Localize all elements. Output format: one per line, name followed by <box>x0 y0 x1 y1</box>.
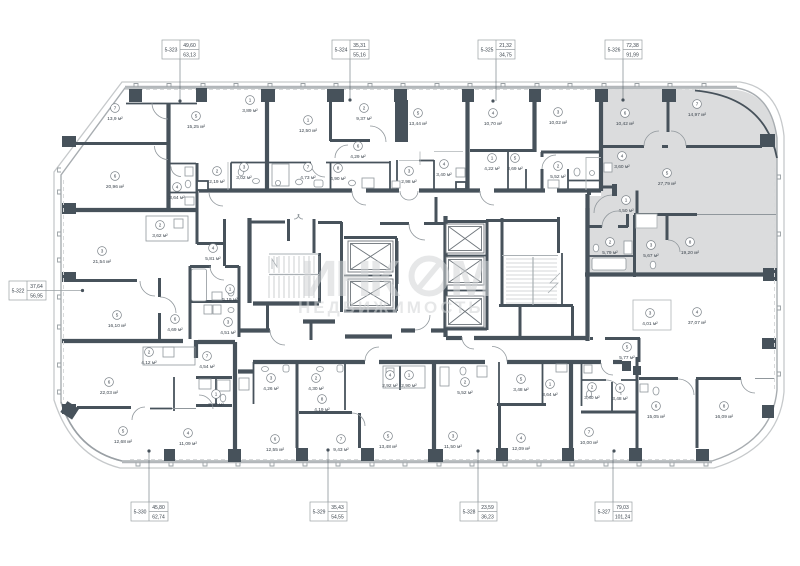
svg-text:12,50 м²: 12,50 м² <box>299 128 318 134</box>
svg-text:5-329: 5-329 <box>313 510 326 516</box>
svg-text:5: 5 <box>417 111 420 116</box>
svg-text:2: 2 <box>464 380 467 385</box>
svg-text:4: 4 <box>176 185 179 190</box>
svg-text:16,09 м²: 16,09 м² <box>715 414 734 420</box>
svg-text:3: 3 <box>270 376 273 381</box>
svg-text:3: 3 <box>557 110 560 115</box>
svg-text:12,55 м²: 12,55 м² <box>266 447 285 453</box>
svg-text:5: 5 <box>520 377 523 382</box>
svg-text:1: 1 <box>249 98 252 103</box>
svg-text:8: 8 <box>337 166 340 171</box>
svg-text:4,19 м²: 4,19 м² <box>314 407 330 413</box>
svg-text:79,03: 79,03 <box>616 505 629 511</box>
svg-text:5-324: 5-324 <box>335 48 348 54</box>
svg-text:35,43: 35,43 <box>331 505 344 511</box>
svg-text:14,97 м²: 14,97 м² <box>688 112 707 118</box>
svg-text:7: 7 <box>206 354 209 359</box>
svg-text:5: 5 <box>387 434 390 439</box>
svg-text:91,99: 91,99 <box>626 53 639 59</box>
svg-text:5,77 м²: 5,77 м² <box>619 355 635 361</box>
svg-text:55,16: 55,16 <box>353 53 366 59</box>
svg-text:5,52 м²: 5,52 м² <box>550 174 566 180</box>
svg-text:7: 7 <box>307 165 310 170</box>
svg-text:1: 1 <box>625 198 628 203</box>
svg-text:2: 2 <box>148 350 151 355</box>
svg-text:5,81 м²: 5,81 м² <box>205 256 221 262</box>
svg-text:3,69 м²: 3,69 м² <box>507 166 523 172</box>
svg-text:2,92 м²: 2,92 м² <box>382 383 398 389</box>
svg-text:11,09 м²: 11,09 м² <box>179 441 197 447</box>
svg-text:3,64 м²: 3,64 м² <box>542 392 558 398</box>
svg-text:6: 6 <box>655 404 658 409</box>
svg-text:2,19 м²: 2,19 м² <box>209 179 225 185</box>
svg-text:72,38: 72,38 <box>626 43 639 49</box>
svg-text:20,96 м²: 20,96 м² <box>106 184 125 190</box>
svg-text:2: 2 <box>609 240 612 245</box>
svg-text:6: 6 <box>274 437 277 442</box>
svg-text:3,62 м²: 3,62 м² <box>152 233 168 239</box>
svg-text:2: 2 <box>159 223 162 228</box>
svg-text:12,68 м²: 12,68 м² <box>114 439 133 445</box>
svg-text:5,67 м²: 5,67 м² <box>643 253 659 259</box>
svg-text:3: 3 <box>452 434 455 439</box>
svg-text:23,59: 23,59 <box>481 505 494 511</box>
svg-text:4: 4 <box>492 111 495 116</box>
svg-text:4: 4 <box>389 373 392 378</box>
svg-text:5: 5 <box>666 171 669 176</box>
svg-text:4,22 м²: 4,22 м² <box>484 166 500 172</box>
svg-text:1: 1 <box>491 156 494 161</box>
svg-text:45,80: 45,80 <box>152 505 165 511</box>
svg-text:5-328: 5-328 <box>463 510 476 516</box>
svg-text:6: 6 <box>114 174 117 179</box>
svg-text:101,24: 101,24 <box>615 515 631 521</box>
svg-text:3: 3 <box>650 243 653 248</box>
svg-text:10,42 м²: 10,42 м² <box>616 121 635 127</box>
svg-text:2,90 м²: 2,90 м² <box>401 383 417 389</box>
svg-text:15,25 м²: 15,25 м² <box>187 124 206 130</box>
svg-text:10,02 м²: 10,02 м² <box>549 120 568 126</box>
svg-text:2: 2 <box>315 376 318 381</box>
svg-text:4: 4 <box>187 431 190 436</box>
svg-text:8: 8 <box>321 397 324 402</box>
svg-text:34,75: 34,75 <box>499 53 512 59</box>
svg-text:3: 3 <box>227 320 230 325</box>
svg-text:10,70 м²: 10,70 м² <box>484 121 503 127</box>
svg-text:1: 1 <box>307 118 310 123</box>
svg-text:7: 7 <box>588 430 591 435</box>
svg-text:6: 6 <box>624 111 627 116</box>
svg-text:13,48 м²: 13,48 м² <box>379 444 398 450</box>
svg-text:5-323: 5-323 <box>165 48 178 54</box>
svg-text:37,07 м²: 37,07 м² <box>688 320 707 326</box>
svg-text:4: 4 <box>520 436 523 441</box>
svg-text:3,40 м²: 3,40 м² <box>584 395 600 401</box>
svg-text:19,20 м²: 19,20 м² <box>681 250 700 256</box>
svg-text:7: 7 <box>340 437 343 442</box>
svg-text:4: 4 <box>696 310 699 315</box>
svg-text:3,02 м²: 3,02 м² <box>236 175 252 181</box>
svg-text:1: 1 <box>549 382 552 387</box>
svg-text:4,73 м²: 4,73 м² <box>300 175 316 181</box>
svg-text:6: 6 <box>108 380 111 385</box>
svg-text:12,09 м²: 12,09 м² <box>512 446 531 452</box>
svg-text:5: 5 <box>626 345 629 350</box>
svg-text:16,10 м²: 16,10 м² <box>108 323 127 329</box>
svg-text:6: 6 <box>174 317 177 322</box>
svg-text:3: 3 <box>101 249 104 254</box>
svg-text:4: 4 <box>443 162 446 167</box>
svg-text:11,50 м²: 11,50 м² <box>444 444 462 450</box>
svg-text:2,98 м²: 2,98 м² <box>401 179 417 185</box>
svg-text:5: 5 <box>122 429 125 434</box>
svg-text:3,48 м²: 3,48 м² <box>513 387 529 393</box>
svg-text:5-327: 5-327 <box>598 510 611 516</box>
svg-text:НЕДВИЖИМОСТЬ: НЕДВИЖИМОСТЬ <box>298 298 484 317</box>
svg-text:4: 4 <box>621 154 624 159</box>
svg-text:21,32: 21,32 <box>499 43 512 49</box>
svg-text:4: 4 <box>212 246 215 251</box>
svg-text:1: 1 <box>215 392 218 397</box>
svg-text:63,13: 63,13 <box>183 53 196 59</box>
svg-text:13,9 м²: 13,9 м² <box>107 116 123 122</box>
svg-text:5,52 м²: 5,52 м² <box>457 390 473 396</box>
svg-text:9: 9 <box>619 386 622 391</box>
svg-text:9,43 м²: 9,43 м² <box>333 447 349 453</box>
svg-text:5,19 м²: 5,19 м² <box>222 297 238 303</box>
svg-text:3,89 м²: 3,89 м² <box>242 108 258 114</box>
svg-text:4,12 м²: 4,12 м² <box>141 360 157 366</box>
svg-text:8: 8 <box>723 404 726 409</box>
svg-text:4,51 м²: 4,51 м² <box>220 330 236 336</box>
svg-text:4,01 м²: 4,01 м² <box>642 321 658 327</box>
svg-text:62,74: 62,74 <box>152 515 165 521</box>
svg-text:13,44 м²: 13,44 м² <box>409 121 428 127</box>
svg-text:15,05 м²: 15,05 м² <box>647 414 666 420</box>
svg-text:37,64: 37,64 <box>30 284 43 290</box>
svg-text:3: 3 <box>649 311 652 316</box>
svg-text:49,60: 49,60 <box>183 43 196 49</box>
svg-text:6: 6 <box>357 144 360 149</box>
svg-text:7: 7 <box>114 106 117 111</box>
svg-text:4,69 м²: 4,69 м² <box>167 327 183 333</box>
svg-text:4,26 м²: 4,26 м² <box>263 386 279 392</box>
svg-text:3,40 м²: 3,40 м² <box>436 172 452 178</box>
svg-text:3,60 м²: 3,60 м² <box>614 164 630 170</box>
svg-text:3,37 м²: 3,37 м² <box>208 402 224 408</box>
svg-text:4,30 м²: 4,30 м² <box>308 386 324 392</box>
svg-text:5-326: 5-326 <box>608 48 621 54</box>
svg-text:4,54 м²: 4,54 м² <box>199 364 215 370</box>
svg-text:54,55: 54,55 <box>331 515 344 521</box>
svg-text:2: 2 <box>363 106 366 111</box>
svg-text:27,79 м²: 27,79 м² <box>658 181 677 187</box>
svg-text:3: 3 <box>408 169 411 174</box>
svg-text:3: 3 <box>243 165 246 170</box>
svg-text:5,79 м²: 5,79 м² <box>602 250 618 256</box>
svg-text:9,37 м²: 9,37 м² <box>356 116 372 122</box>
svg-text:4,29 м²: 4,29 м² <box>350 154 366 160</box>
svg-text:5-330: 5-330 <box>134 510 147 516</box>
svg-text:5: 5 <box>116 313 119 318</box>
svg-text:35,31: 35,31 <box>353 43 366 49</box>
svg-text:7: 7 <box>696 102 699 107</box>
svg-text:8: 8 <box>689 240 692 245</box>
svg-text:3,64 м²: 3,64 м² <box>169 195 185 201</box>
svg-text:21,54 м²: 21,54 м² <box>93 259 112 265</box>
svg-text:5: 5 <box>195 114 198 119</box>
svg-text:5-325: 5-325 <box>481 48 494 54</box>
svg-text:1: 1 <box>229 287 232 292</box>
svg-text:4,90 м²: 4,90 м² <box>330 176 346 182</box>
svg-text:2: 2 <box>216 169 219 174</box>
svg-text:10,00 м²: 10,00 м² <box>580 440 599 446</box>
svg-text:4,50 м²: 4,50 м² <box>618 208 634 214</box>
svg-text:2: 2 <box>557 164 560 169</box>
svg-text:36,23: 36,23 <box>481 515 494 521</box>
svg-text:5: 5 <box>514 156 517 161</box>
svg-text:5-322: 5-322 <box>12 289 25 295</box>
svg-text:3,48 м²: 3,48 м² <box>612 396 628 402</box>
svg-text:2: 2 <box>591 385 594 390</box>
svg-text:22,03 м²: 22,03 м² <box>100 390 119 396</box>
svg-text:1: 1 <box>408 373 411 378</box>
svg-text:56,95: 56,95 <box>30 294 43 300</box>
